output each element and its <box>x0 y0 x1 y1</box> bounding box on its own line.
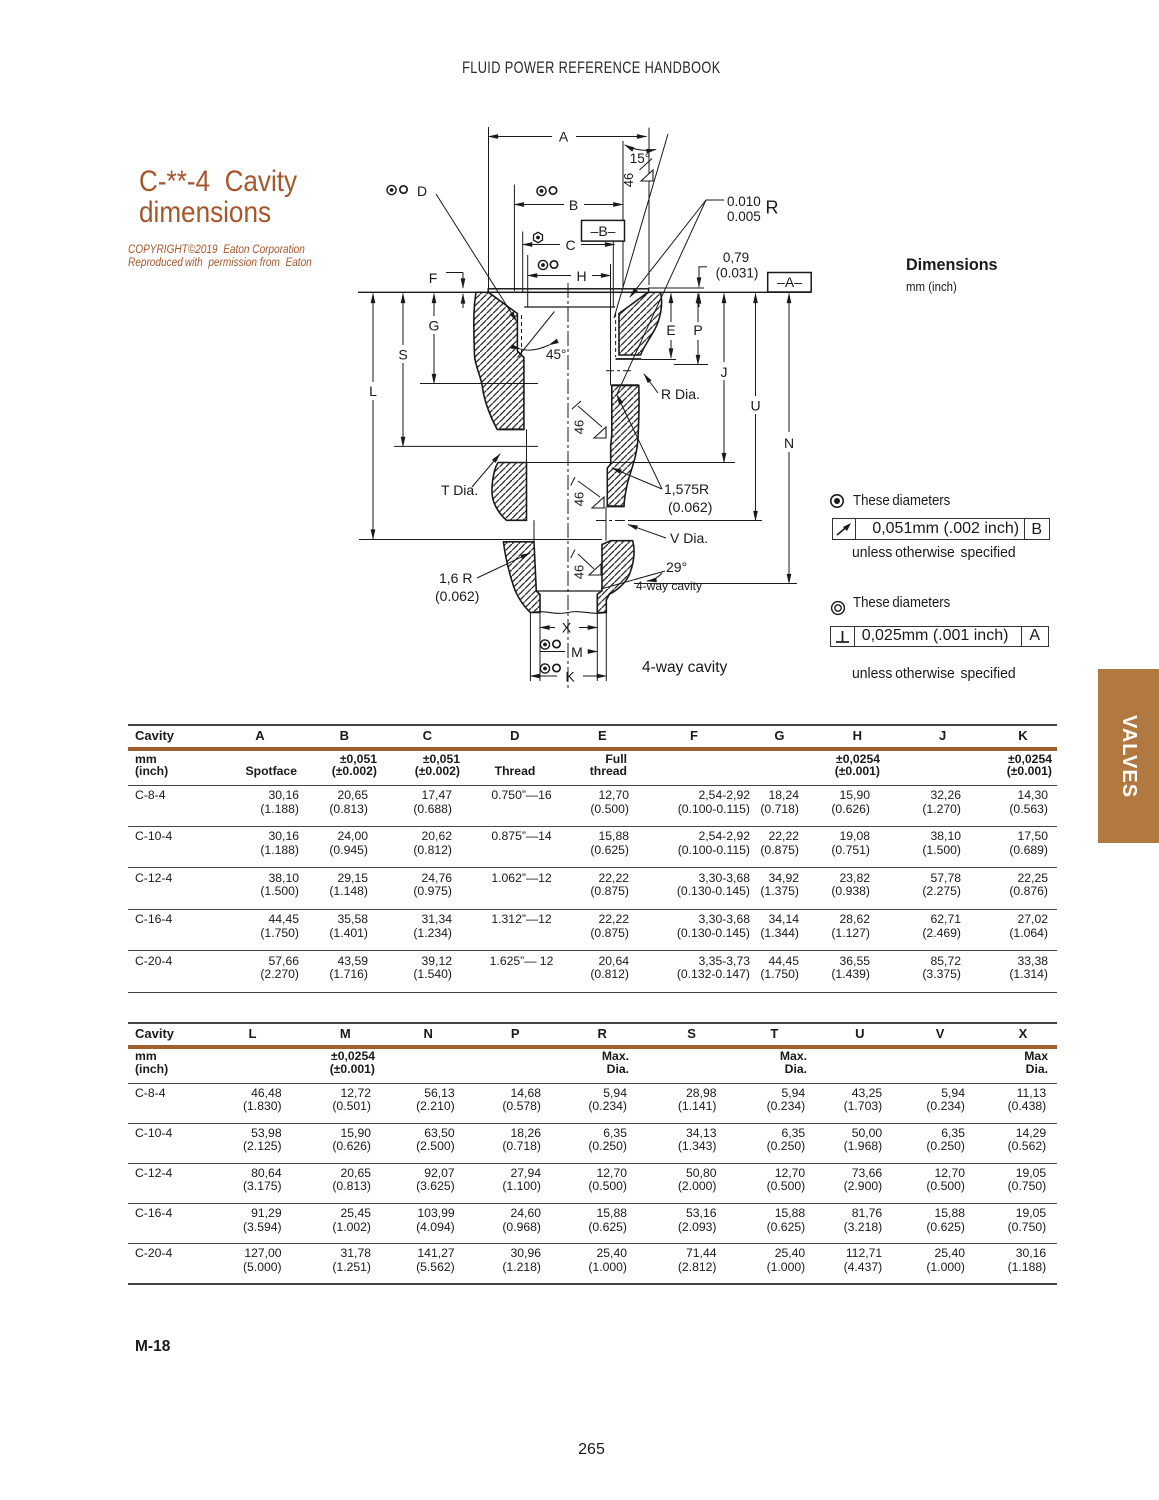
svg-text:(0.062): (0.062) <box>668 499 712 515</box>
svg-text:T Dia.: T Dia. <box>441 482 478 498</box>
svg-text:U: U <box>750 398 760 414</box>
svg-text:N: N <box>784 435 794 451</box>
svg-text:E: E <box>666 322 675 338</box>
svg-text:4-way cavity: 4-way cavity <box>636 579 702 593</box>
svg-text:F: F <box>429 270 438 286</box>
svg-text:X: X <box>562 620 572 636</box>
svg-text:P: P <box>693 322 702 338</box>
svg-text:H: H <box>576 268 586 284</box>
svg-text:4-way cavity: 4-way cavity <box>642 659 728 676</box>
svg-text:(0.062): (0.062) <box>435 588 479 604</box>
svg-text:–B–: –B– <box>591 223 616 239</box>
svg-text:0.005: 0.005 <box>727 209 761 224</box>
svg-text:V Dia.: V Dia. <box>670 530 708 546</box>
svg-text:45°: 45° <box>546 347 566 362</box>
svg-text:B: B <box>569 197 578 213</box>
svg-text:1,575R: 1,575R <box>664 481 709 497</box>
svg-text:L: L <box>369 383 377 399</box>
svg-text:K: K <box>565 669 575 685</box>
svg-text:46: 46 <box>572 492 587 506</box>
svg-text:M: M <box>571 644 583 660</box>
svg-text:(0.031): (0.031) <box>716 266 759 281</box>
svg-text:J: J <box>721 364 728 380</box>
svg-text:0,79: 0,79 <box>723 250 749 265</box>
svg-text:0.010: 0.010 <box>727 194 761 209</box>
svg-text:1,6 R: 1,6 R <box>439 570 472 586</box>
svg-text:46: 46 <box>572 420 587 434</box>
svg-text:R: R <box>766 198 779 218</box>
svg-text:15°: 15° <box>630 151 650 166</box>
svg-text:29°: 29° <box>666 559 687 575</box>
svg-text:S: S <box>398 347 407 363</box>
svg-text:A: A <box>559 129 569 145</box>
svg-text:G: G <box>429 318 440 334</box>
svg-text:–A–: –A– <box>777 274 802 290</box>
svg-text:46: 46 <box>572 565 587 579</box>
svg-text:C: C <box>565 237 575 253</box>
svg-text:46: 46 <box>621 173 636 187</box>
svg-text:R Dia.: R Dia. <box>661 386 700 402</box>
svg-text:D: D <box>417 183 427 199</box>
